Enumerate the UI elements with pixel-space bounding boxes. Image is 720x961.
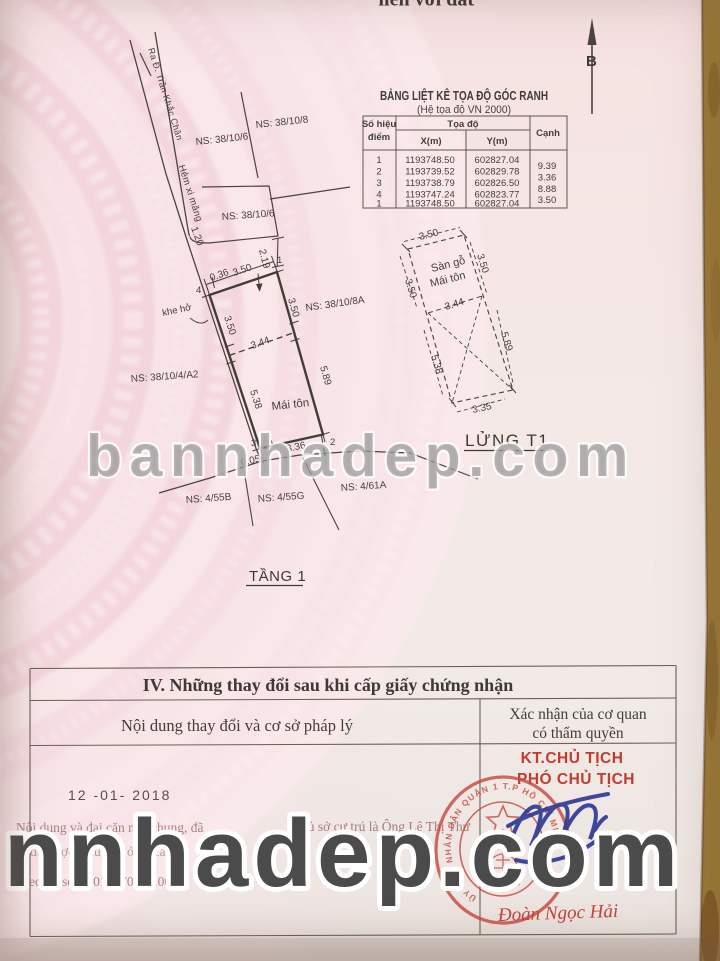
svg-text:5.89: 5.89 (498, 331, 514, 353)
svg-text:(Hệ tọa độ VN 2000): (Hệ tọa độ VN 2000) (417, 104, 511, 116)
svg-text:602829.78: 602829.78 (475, 167, 520, 178)
svg-text:1193739.52: 1193739.52 (405, 167, 455, 178)
svg-text:Xác nhận của cơ quan: Xác nhận của cơ quan (509, 706, 647, 723)
svg-text:B: B (586, 53, 597, 70)
svg-text:bannhadep.com: bannhadep.com (86, 423, 636, 489)
svg-text:1: 1 (376, 155, 381, 166)
svg-text:8.88: 8.88 (538, 184, 557, 195)
svg-text:3: 3 (376, 178, 381, 189)
svg-text:Y(m): Y(m) (486, 136, 507, 147)
svg-text:4: 4 (196, 285, 201, 296)
svg-text:KT.CHỦ TỊCH: KT.CHỦ TỊCH (521, 749, 624, 767)
svg-text:có thẩm quyền: có thẩm quyền (532, 725, 624, 742)
svg-text:Cạnh: Cạnh (536, 128, 560, 139)
svg-text:602827.04: 602827.04 (475, 199, 520, 210)
svg-text:liền với đất: liền với đất (378, 0, 474, 11)
svg-text:Số hiệu: Số hiệu (362, 119, 397, 130)
svg-text:1193738.79: 1193738.79 (405, 178, 455, 189)
svg-text:Nội dung thay đổi và cơ sở phá: Nội dung thay đổi và cơ sở pháp lý (121, 716, 354, 735)
svg-text:BẢNG LIỆT KÊ TỌA ĐỘ GÓC RANH: BẢNG LIỆT KÊ TỌA ĐỘ GÓC RANH (380, 88, 548, 103)
svg-text:9.39: 9.39 (538, 161, 557, 172)
svg-text:IV. Những thay đổi sau khi cấp: IV. Những thay đổi sau khi cấp giấy chứn… (143, 675, 513, 695)
svg-text:TẦNG 1: TẦNG 1 (249, 568, 306, 585)
svg-text:Tọa độ: Tọa độ (447, 119, 478, 130)
svg-text:X(m): X(m) (420, 136, 441, 147)
svg-text:1193748.50: 1193748.50 (405, 155, 455, 166)
svg-text:nnhadep.com: nnhadep.com (4, 800, 683, 907)
svg-text:3.50: 3.50 (538, 195, 557, 206)
svg-text:602827.04: 602827.04 (475, 155, 520, 166)
svg-text:3.36: 3.36 (538, 173, 557, 184)
svg-text:1193748.50: 1193748.50 (405, 199, 455, 210)
svg-text:602826.50: 602826.50 (475, 178, 520, 189)
svg-text:1: 1 (277, 255, 282, 266)
svg-text:2: 2 (376, 167, 381, 178)
svg-text:1: 1 (376, 199, 381, 210)
svg-text:điểm: điểm (368, 132, 390, 143)
